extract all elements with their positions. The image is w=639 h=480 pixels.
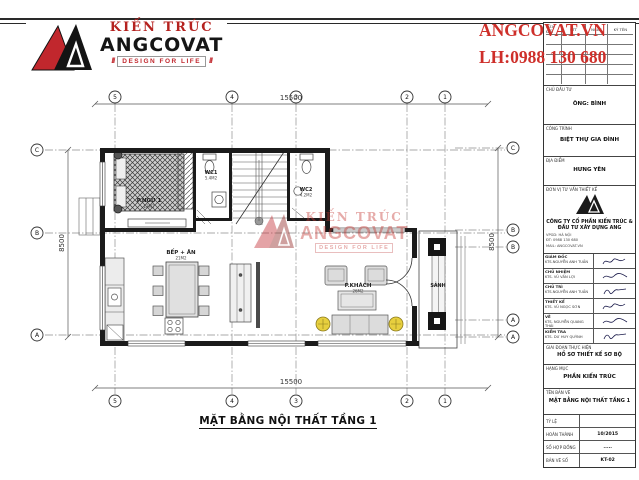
grid-bubble: B	[31, 227, 43, 239]
signature-row: GIÁM ĐỐCKTS.NGUYỄN ANH TUẤN	[544, 254, 635, 269]
logo-tagline: DESIGN FOR LIFE	[117, 56, 206, 67]
signature-glyph-icon	[601, 255, 629, 267]
tb-stage: GIAI ĐOẠN THỰC HIỆN HỒ SƠ THIẾT KẾ SƠ BỘ	[544, 344, 635, 365]
tb-footer: TỶ LỆHOÀN THÀNH10/2015SỐ HỢP ĐỒNG.....BẢ…	[544, 415, 635, 467]
dim-right: 8500	[488, 233, 496, 251]
grid-bubble: 1	[439, 395, 451, 407]
grid-bubble: 1	[439, 91, 451, 103]
tb-footer-label: HOÀN THÀNH	[544, 428, 580, 440]
tb-logo-triangle-icon	[575, 193, 605, 216]
tb-stage-label: GIAI ĐOẠN THỰC HIỆN	[546, 345, 633, 350]
grid-bubble: A	[507, 314, 519, 326]
svg-text:B: B	[35, 230, 39, 237]
signature-row: KIỂM TRAKTS. DƯ HUY QUỲNH	[544, 329, 635, 344]
svg-text:B: B	[511, 227, 515, 234]
tb-footer-value: KT-02	[580, 454, 635, 467]
room-living-area: 26M2	[352, 289, 364, 294]
tb-project-label: CÔNG TRÌNH	[546, 126, 633, 131]
grid-bubble: 2	[401, 395, 413, 407]
wc1-fixtures	[197, 154, 226, 224]
tb-consultant-label: ĐƠN VỊ TƯ VẤN THIẾT KẾ	[546, 187, 633, 192]
tb-footer-row: HOÀN THÀNH10/2015	[544, 428, 635, 441]
tb-category: HẠNG MỤC PHẦN KIẾN TRÚC	[544, 365, 635, 389]
tb-contact-line: MAIL: ANGCOVAT.VN	[546, 244, 633, 248]
svg-text:3: 3	[294, 398, 298, 405]
signature-name: KTS. NGUYỄN QUANG THÁI	[545, 320, 592, 328]
grid-bubble: 4	[226, 91, 238, 103]
wc2-fixtures	[292, 154, 313, 218]
room-bedroom-area: 13M2	[143, 204, 155, 209]
room-bedroom-label: P.NGỦ 1	[137, 196, 162, 204]
dresser	[128, 219, 186, 227]
signature-row: VẼKTS. NGUYỄN QUANG THÁI	[544, 314, 635, 329]
tb-drawing-name: TÊN BẢN VẼ MẶT BẰNG NỘI THẤT TẦNG 1	[544, 389, 635, 416]
dim-top: 15500	[280, 94, 302, 102]
plan-caption: MẶT BẰNG NỘI THẤT TẦNG 1	[168, 411, 408, 429]
kitchen-counter	[105, 258, 124, 343]
svg-text:C: C	[511, 145, 515, 152]
grid-bubble: C	[507, 142, 519, 154]
tb-project: CÔNG TRÌNH BIỆT THỰ GIA ĐÌNH	[544, 125, 635, 157]
grid-bubble: B	[507, 241, 519, 253]
grid-bubble: A	[507, 331, 519, 343]
company-logo: KIẾN TRÚC ANGCOVAT /// DESIGN FOR LIFE /…	[26, 20, 227, 74]
tb-footer-label: SỐ HỢP ĐỒNG	[544, 441, 580, 453]
logo-brand: ANGCOVAT	[100, 35, 223, 55]
logo-brand-top: KIẾN TRÚC	[110, 20, 214, 35]
tv-cabinet	[230, 264, 251, 322]
svg-text:4: 4	[230, 94, 234, 101]
tb-investor: CHỦ ĐẦU TƯ ÔNG: BÌNH	[544, 86, 635, 125]
svg-text:2: 2	[405, 398, 409, 405]
tb-contact-line: ĐT: 0988 130 680	[546, 238, 633, 242]
tb-company-name: CÔNG TY CỔ PHẦN KIẾN TRÚC & ĐẦU TƯ XÂY D…	[546, 220, 633, 232]
contact-site: ANGCOVAT.VN	[479, 17, 637, 44]
tb-drawing-value: MẶT BẰNG NỘI THẤT TẦNG 1	[546, 398, 633, 404]
wardrobe	[178, 151, 193, 209]
side-steps	[79, 198, 100, 235]
tb-footer-value	[580, 415, 635, 427]
tb-footer-value: .....	[580, 441, 635, 453]
svg-text:5: 5	[113, 398, 117, 405]
svg-text:1: 1	[443, 398, 447, 405]
grid-bubble: 3	[290, 395, 302, 407]
sofa-set	[316, 266, 403, 334]
tb-location-value: HƯNG YÊN	[546, 167, 633, 173]
signature-name: KTS. VŨ NGỌC SƠN	[545, 305, 592, 309]
tb-consultant: ĐƠN VỊ TƯ VẤN THIẾT KẾ CÔNG TY CỔ PHẦN K…	[544, 186, 635, 255]
tb-company-contacts: VPGD: HÀ NỘIĐT: 0988 130 680MAIL: ANGCOV…	[546, 233, 633, 248]
grid-bubble: 4	[226, 395, 238, 407]
hatch-right-icon: ///	[209, 58, 212, 65]
signature-row: CHỦ NHIỆMKTS. VŨ VĂN LỢI	[544, 269, 635, 284]
revision-row	[546, 75, 633, 84]
tb-footer-label: BẢN VẼ SỐ	[544, 454, 580, 467]
contact-banner: ANGCOVAT.VN LH:0988 130 680	[479, 17, 637, 71]
logo-tagline-wrap: /// DESIGN FOR LIFE ///	[111, 56, 212, 67]
signature-name: KTS.NGUYỄN ANH TUẤN	[545, 290, 592, 294]
tb-investor-label: CHỦ ĐẦU TƯ	[546, 87, 633, 92]
tb-footer-value: 10/2015	[580, 428, 635, 440]
signature-glyph-icon	[601, 300, 629, 312]
signature-name: KTS. DƯ HUY QUỲNH	[545, 335, 592, 339]
room-wc2-area: 4.2M2	[300, 193, 313, 198]
svg-text:2: 2	[405, 94, 409, 101]
signature-name: KTS.NGUYỄN ANH TUẤN	[545, 260, 592, 264]
signature-glyph-icon	[601, 270, 629, 282]
signature-row: THIẾT KẾKTS. VŨ NGỌC SƠN	[544, 299, 635, 314]
svg-text:B: B	[511, 244, 515, 251]
svg-text:5: 5	[113, 94, 117, 101]
contact-phone: LH:0988 130 680	[479, 44, 637, 71]
signature-glyph-icon	[601, 315, 629, 327]
title-block: SỬA ĐỔISTTNGÀYKÝ TÊN CHỦ ĐẦU TƯ ÔNG: BÌN…	[543, 22, 636, 468]
tb-location: ĐỊA ĐIỂM HƯNG YÊN	[544, 157, 635, 185]
tb-category-label: HẠNG MỤC	[546, 366, 633, 371]
tb-footer-row: SỐ HỢP ĐỒNG.....	[544, 441, 635, 454]
svg-text:4: 4	[230, 398, 234, 405]
tb-footer-row: TỶ LỆ	[544, 415, 635, 428]
stairs	[233, 150, 287, 225]
tb-project-value: BIỆT THỰ GIA ĐÌNH	[546, 137, 633, 143]
drawing-sheet: KIẾN TRÚC ANGCOVAT /// DESIGN FOR LIFE /…	[0, 0, 639, 480]
room-kitchen-area: 21M2	[175, 256, 187, 261]
tb-investor-value: ÔNG: BÌNH	[546, 101, 633, 107]
grid-bubble: A	[31, 329, 43, 341]
signature-rows: GIÁM ĐỐCKTS.NGUYỄN ANH TUẤNCHỦ NHIỆMKTS.…	[544, 254, 635, 344]
tb-footer-row: BẢN VẼ SỐKT-02	[544, 454, 635, 467]
tb-stage-value: HỒ SƠ THIẾT KẾ SƠ BỘ	[546, 352, 633, 358]
porch	[419, 231, 465, 348]
tb-drawing-label: TÊN BẢN VẼ	[546, 390, 633, 395]
tb-footer-label: TỶ LỆ	[544, 415, 580, 427]
signature-row: CHỦ TRÌKTS.NGUYỄN ANH TUẤN	[544, 284, 635, 299]
signature-name: KTS. VŨ VĂN LỢI	[545, 275, 592, 279]
hatch-left-icon: ///	[111, 58, 114, 65]
svg-text:1: 1	[443, 94, 447, 101]
dim-left: 8500	[58, 234, 66, 252]
dining-set	[153, 262, 209, 317]
plan-caption-text: MẶT BẰNG NỘI THẤT TẦNG 1	[199, 415, 377, 429]
tb-category-value: PHẦN KIẾN TRÚC	[546, 374, 633, 380]
signature-glyph-icon	[601, 330, 629, 342]
signature-glyph-icon	[601, 285, 629, 297]
dim-bottom: 15500	[280, 378, 302, 386]
room-wc1-area: 5.4M2	[205, 176, 218, 181]
entry-door-swing	[386, 258, 412, 306]
grid-bubble: 5	[109, 395, 121, 407]
tb-contact-line: VPGD: HÀ NỘI	[546, 233, 633, 237]
grid-bubble: B	[507, 224, 519, 236]
grid-bubble: C	[31, 144, 43, 156]
logo-triangle-icon	[30, 20, 94, 74]
tb-location-label: ĐỊA ĐIỂM	[546, 158, 633, 163]
cooktop	[165, 318, 183, 334]
grid-bubble: 5	[109, 91, 121, 103]
grid-bubble: 2	[401, 91, 413, 103]
svg-text:C: C	[35, 147, 39, 154]
